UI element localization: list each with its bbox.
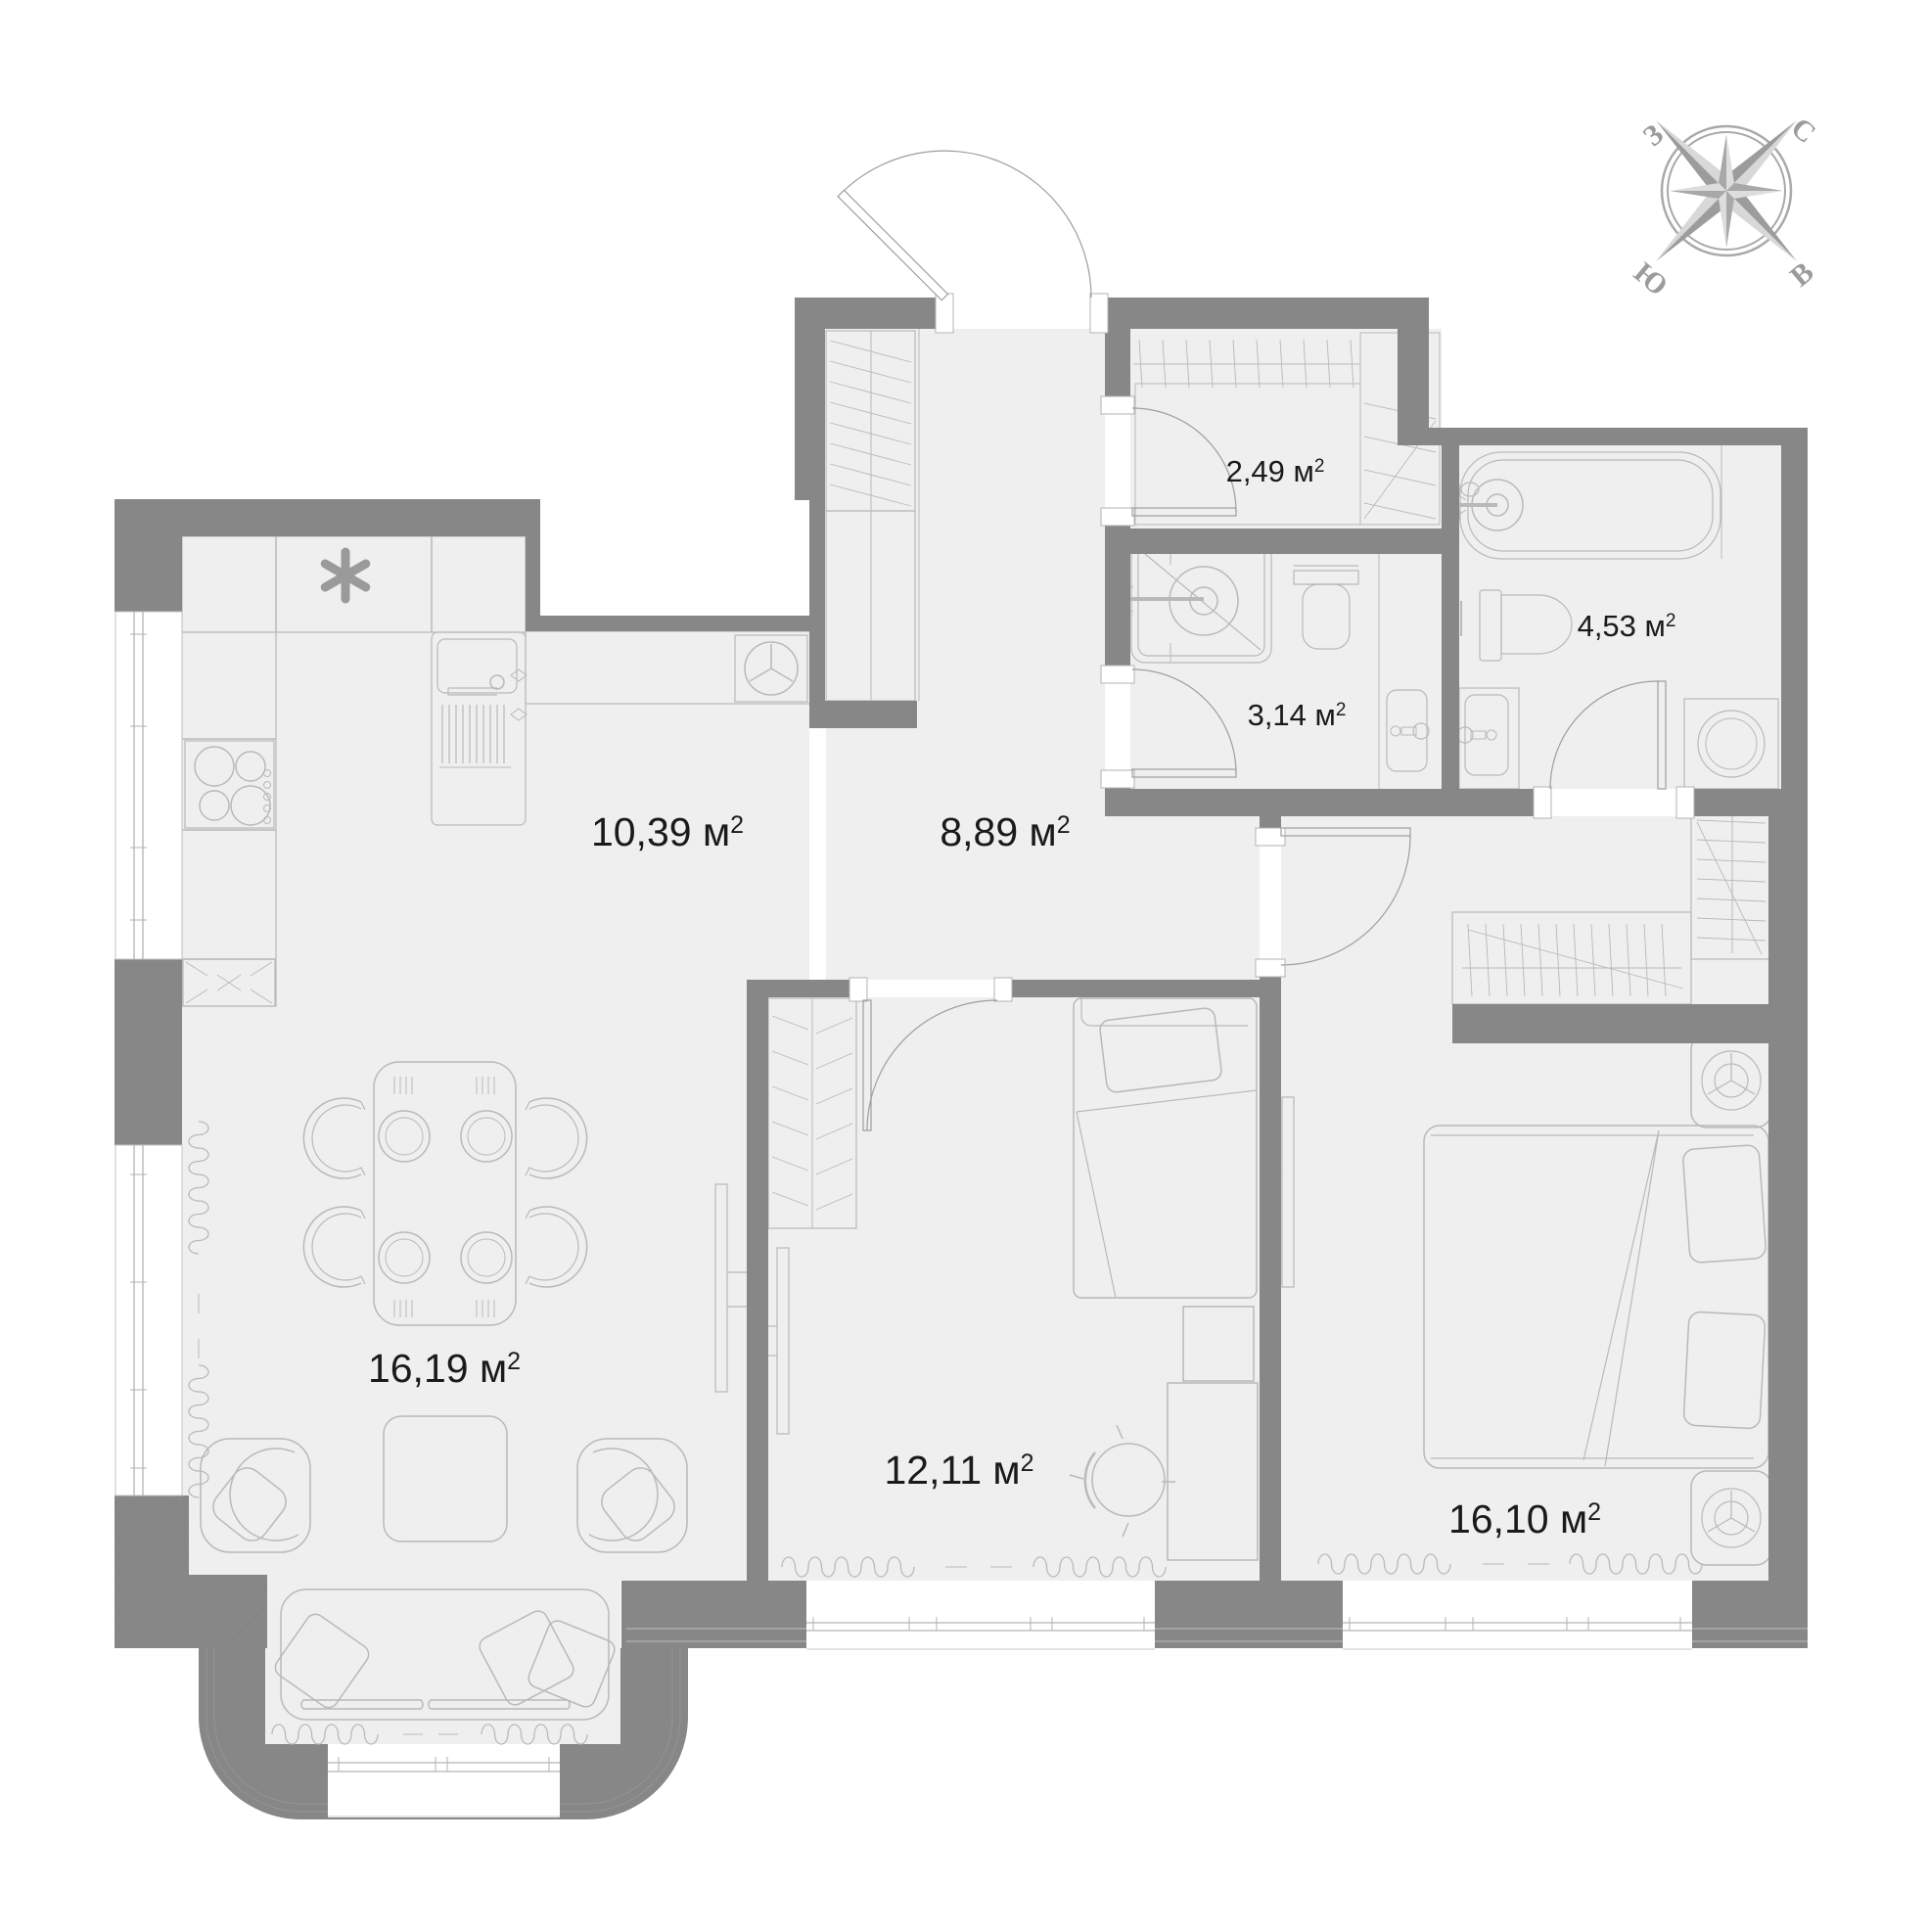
- svg-text:3,14 м2: 3,14 м2: [1248, 698, 1347, 732]
- svg-text:12,11 м2: 12,11 м2: [884, 1448, 1033, 1493]
- svg-text:4,53 м2: 4,53 м2: [1578, 609, 1676, 643]
- svg-text:16,10 м2: 16,10 м2: [1448, 1496, 1601, 1541]
- svg-text:10,39 м2: 10,39 м2: [591, 809, 744, 854]
- svg-text:8,89 м2: 8,89 м2: [940, 809, 1070, 854]
- svg-text:2,49 м2: 2,49 м2: [1226, 454, 1325, 488]
- svg-text:16,19 м2: 16,19 м2: [368, 1346, 521, 1391]
